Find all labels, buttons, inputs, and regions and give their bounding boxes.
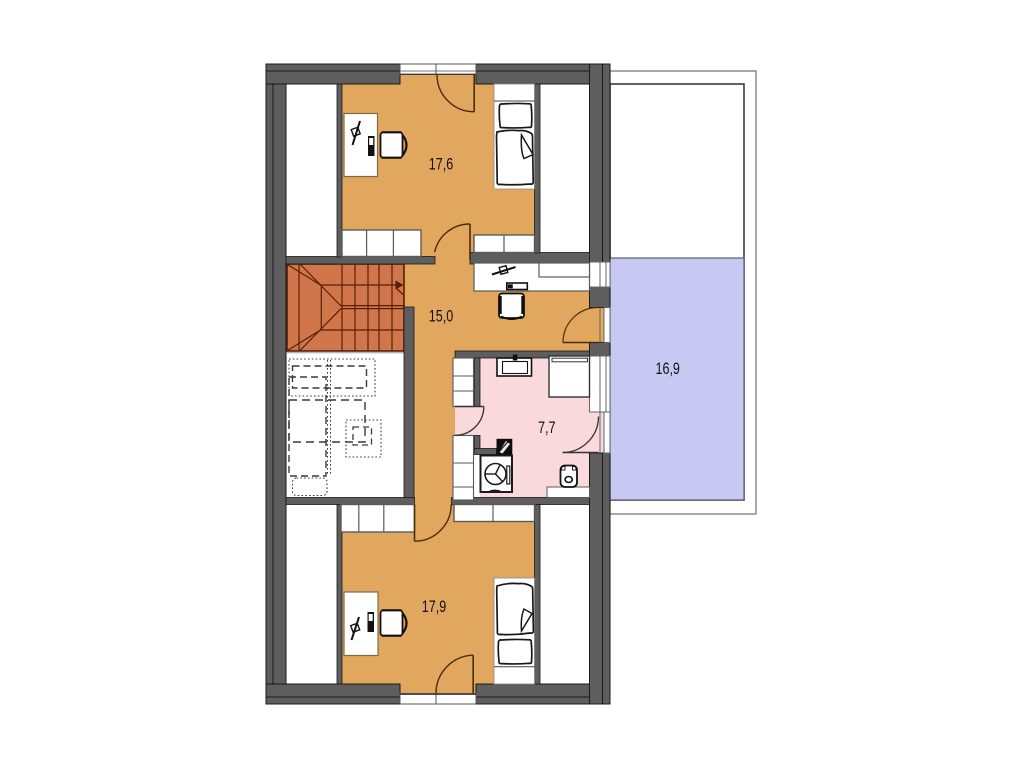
svg-text:15,0: 15,0 xyxy=(429,307,454,326)
svg-text:17,9: 17,9 xyxy=(422,597,447,616)
svg-text:7,7: 7,7 xyxy=(538,418,556,437)
svg-text:17,6: 17,6 xyxy=(429,155,454,174)
svg-text:16,9: 16,9 xyxy=(655,359,680,378)
